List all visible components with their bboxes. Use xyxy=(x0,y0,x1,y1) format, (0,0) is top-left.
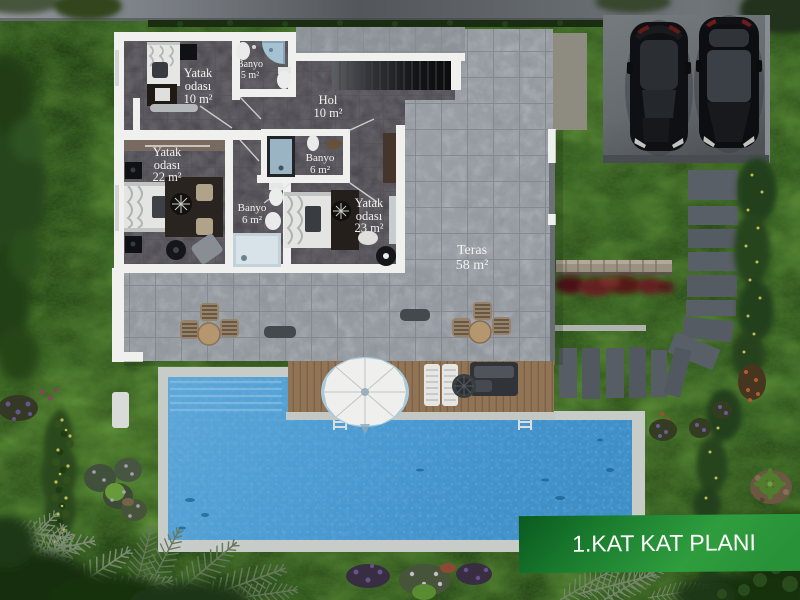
svg-text:Yatak: Yatak xyxy=(153,145,182,159)
svg-text:1.KAT KAT PLANI: 1.KAT KAT PLANI xyxy=(572,529,756,556)
svg-text:Hol: Hol xyxy=(319,93,338,107)
svg-text:Banyo: Banyo xyxy=(306,152,335,164)
svg-text:10 m²: 10 m² xyxy=(183,92,212,106)
svg-text:Banyo: Banyo xyxy=(238,202,267,214)
svg-text:Teras: Teras xyxy=(457,243,487,258)
svg-text:odası: odası xyxy=(185,79,212,93)
svg-text:5 m²: 5 m² xyxy=(241,70,259,81)
svg-text:58 m²: 58 m² xyxy=(456,258,489,273)
svg-text:23 m²: 23 m² xyxy=(354,221,383,235)
svg-text:6 m²: 6 m² xyxy=(310,164,331,176)
svg-text:22 m²: 22 m² xyxy=(152,170,181,184)
svg-text:Banyo: Banyo xyxy=(237,59,263,70)
svg-text:10 m²: 10 m² xyxy=(313,106,342,120)
svg-text:Yatak: Yatak xyxy=(355,196,384,210)
svg-text:6 m²: 6 m² xyxy=(242,214,263,226)
svg-text:Yatak: Yatak xyxy=(184,66,213,80)
